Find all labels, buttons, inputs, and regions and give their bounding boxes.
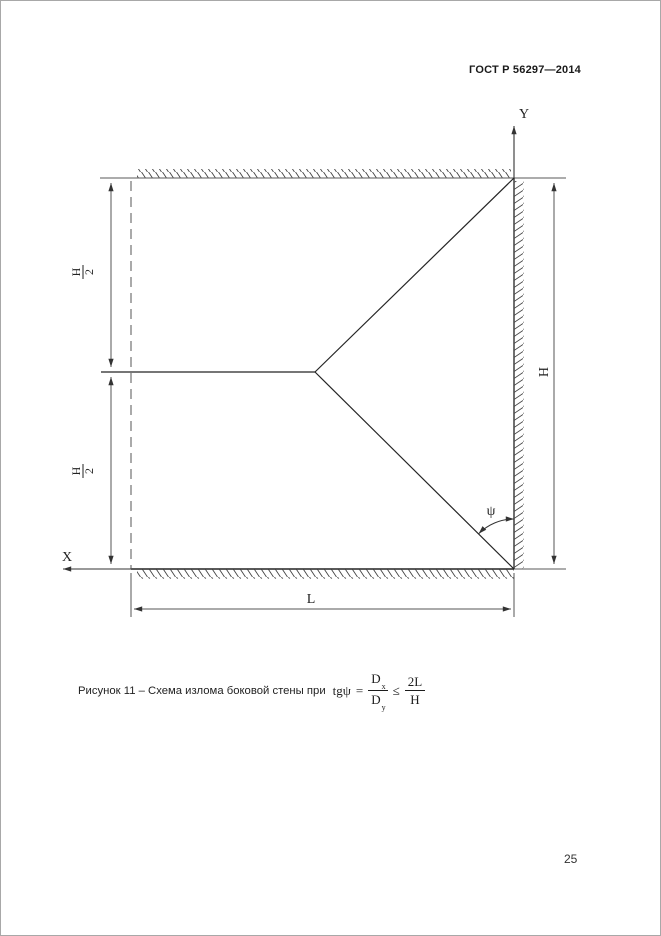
- formula-equals-sign: =: [356, 683, 363, 699]
- formula-fraction-dx-dy: Dx Dy: [368, 672, 387, 710]
- figure-11-diagram: X Y H 2 H 2 H L ψ: [1, 1, 661, 936]
- top-wall-hatching: [137, 169, 511, 178]
- figure-caption-text: Рисунок 11 – Схема излома боковой стены …: [78, 685, 326, 697]
- dim-label-length: L: [307, 592, 316, 607]
- y-axis-label: Y: [519, 107, 529, 122]
- page-number: 25: [564, 852, 577, 866]
- formula-leq-sign: ≤: [393, 683, 400, 699]
- figure-caption-formula: tgψ = Dx Dy ≤ 2L H: [333, 672, 426, 710]
- formula-denominator-dy: Dy: [368, 693, 387, 710]
- bottom-wall-hatching: [137, 570, 514, 579]
- dim-upper-h-half-numerator: H: [69, 267, 83, 276]
- fraction-bar: [405, 690, 425, 691]
- formula-fraction-2l-h: 2L H: [405, 675, 425, 706]
- subscript-y: y: [382, 703, 386, 712]
- dim-upper-h-half-denominator: 2: [82, 269, 96, 275]
- dim-label-height: H: [537, 367, 552, 377]
- dim-label-upper-h-half: H 2: [69, 265, 96, 279]
- dim-label-lower-h-half: H 2: [69, 464, 96, 478]
- formula-denominator-h: H: [407, 693, 422, 707]
- angle-psi-label: ψ: [487, 504, 496, 519]
- subscript-x: x: [382, 682, 386, 691]
- svg-text:H: H: [537, 367, 552, 377]
- document-page: ГОСТ Р 56297—2014 X: [0, 0, 661, 936]
- formula-numerator-dx: Dx: [368, 672, 387, 689]
- right-wall-hatching: [515, 181, 524, 569]
- x-axis-label: X: [62, 550, 72, 565]
- upper-diagonal-fold-line: [315, 178, 514, 372]
- dim-lower-h-half-numerator: H: [69, 466, 83, 475]
- figure-caption: Рисунок 11 – Схема излома боковой стены …: [78, 667, 425, 715]
- formula-numerator-2l: 2L: [405, 675, 425, 689]
- formula-lhs: tgψ: [333, 683, 351, 699]
- angle-arc: [479, 519, 514, 534]
- lower-diagonal-fold-line: [315, 372, 514, 569]
- dim-lower-h-half-denominator: 2: [82, 468, 96, 474]
